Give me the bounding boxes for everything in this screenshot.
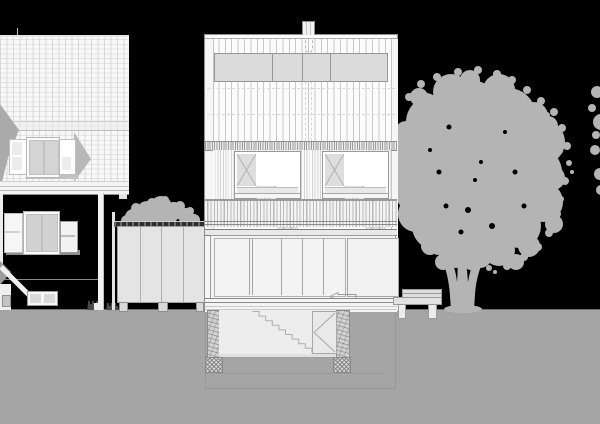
basement-stair	[0, 0, 600, 424]
stair-steps	[253, 312, 312, 353]
footing-right	[333, 357, 351, 373]
footing-left	[205, 357, 223, 373]
basement-door	[312, 311, 337, 354]
bench-leg-left	[398, 304, 406, 319]
basement-floor-slab	[219, 354, 336, 358]
bench-leg-right	[428, 304, 437, 319]
door-swing-symbol	[313, 312, 336, 353]
site-elevation-drawing	[0, 0, 600, 424]
